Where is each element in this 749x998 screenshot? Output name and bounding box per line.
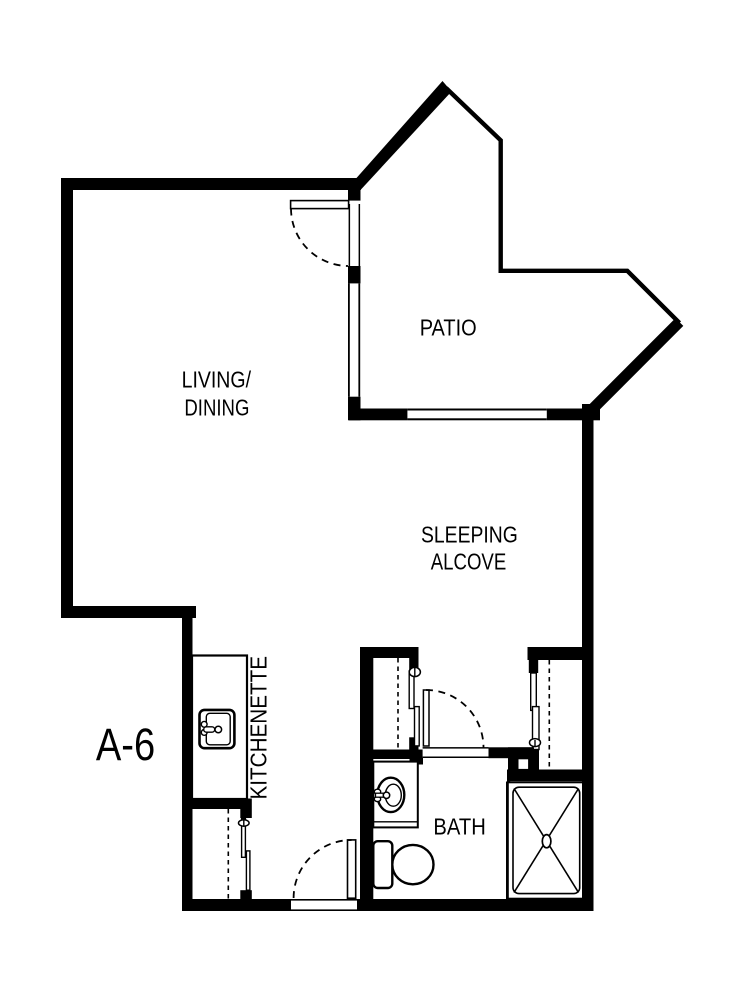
- svg-text:DINING: DINING: [184, 394, 249, 420]
- svg-text:ALCOVE: ALCOVE: [431, 549, 507, 575]
- svg-text:PATIO: PATIO: [420, 314, 477, 340]
- svg-text:A-6: A-6: [96, 719, 155, 770]
- svg-text:LIVING/: LIVING/: [182, 367, 252, 393]
- svg-text:BATH: BATH: [433, 814, 485, 840]
- svg-text:KITCHENETTE: KITCHENETTE: [246, 656, 272, 800]
- svg-text:SLEEPING: SLEEPING: [421, 521, 518, 547]
